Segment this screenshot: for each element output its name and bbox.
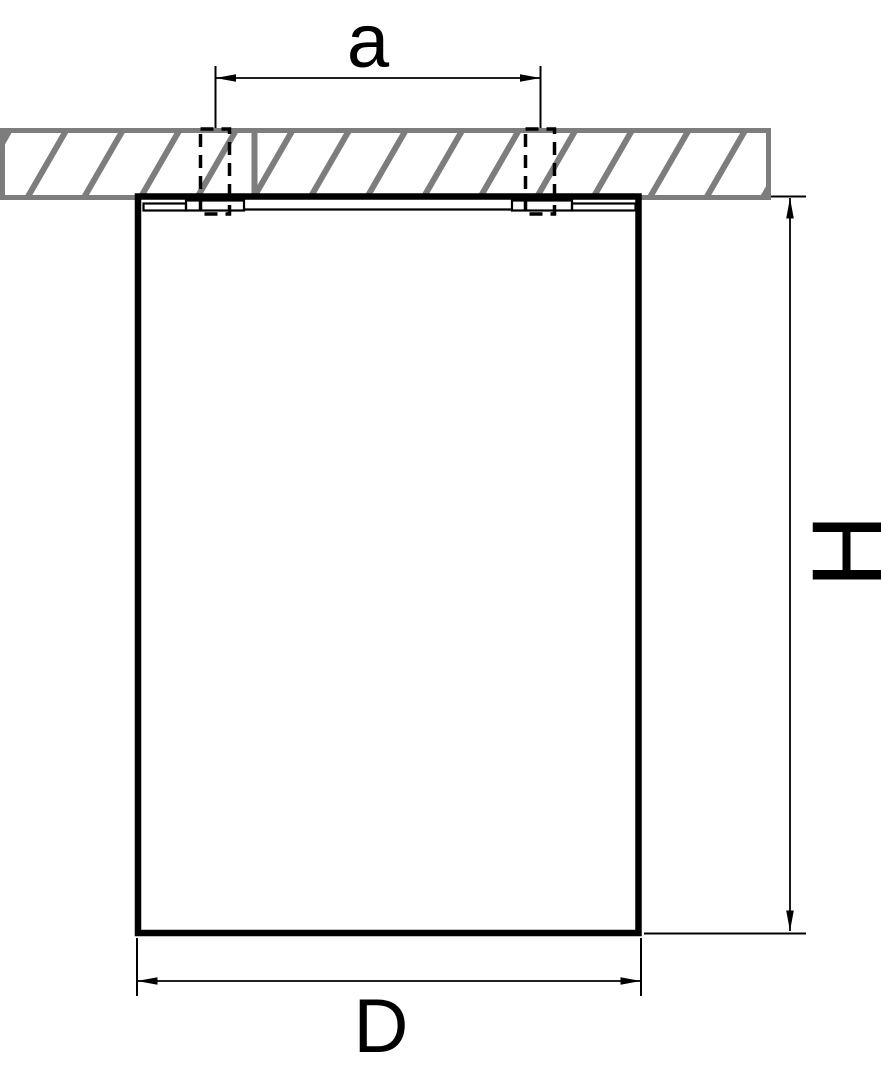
dim-d-label: D [354, 984, 409, 1069]
dim-h-arrow-bottom [786, 911, 794, 932]
dim-d-arrow-left [137, 977, 158, 985]
dimension-a: a [216, 0, 541, 128]
dim-a-label: a [347, 0, 390, 84]
dimension-h: H [786, 198, 881, 931]
dimension-h-extensions [644, 197, 806, 934]
fixture-body [138, 197, 639, 934]
technical-drawing-canvas: a H D [0, 0, 881, 1080]
dim-a-arrow-right [520, 74, 541, 82]
dim-h-arrow-top [786, 198, 794, 219]
ceiling-hatched-band [3, 131, 769, 198]
dimension-d: D [137, 938, 641, 1069]
dim-a-arrow-left [216, 74, 237, 82]
fixture-dimension-diagram: a H D [0, 0, 881, 1080]
ceiling-section [3, 128, 769, 200]
dim-h-label: H [791, 514, 881, 588]
dim-d-arrow-right [621, 977, 642, 985]
